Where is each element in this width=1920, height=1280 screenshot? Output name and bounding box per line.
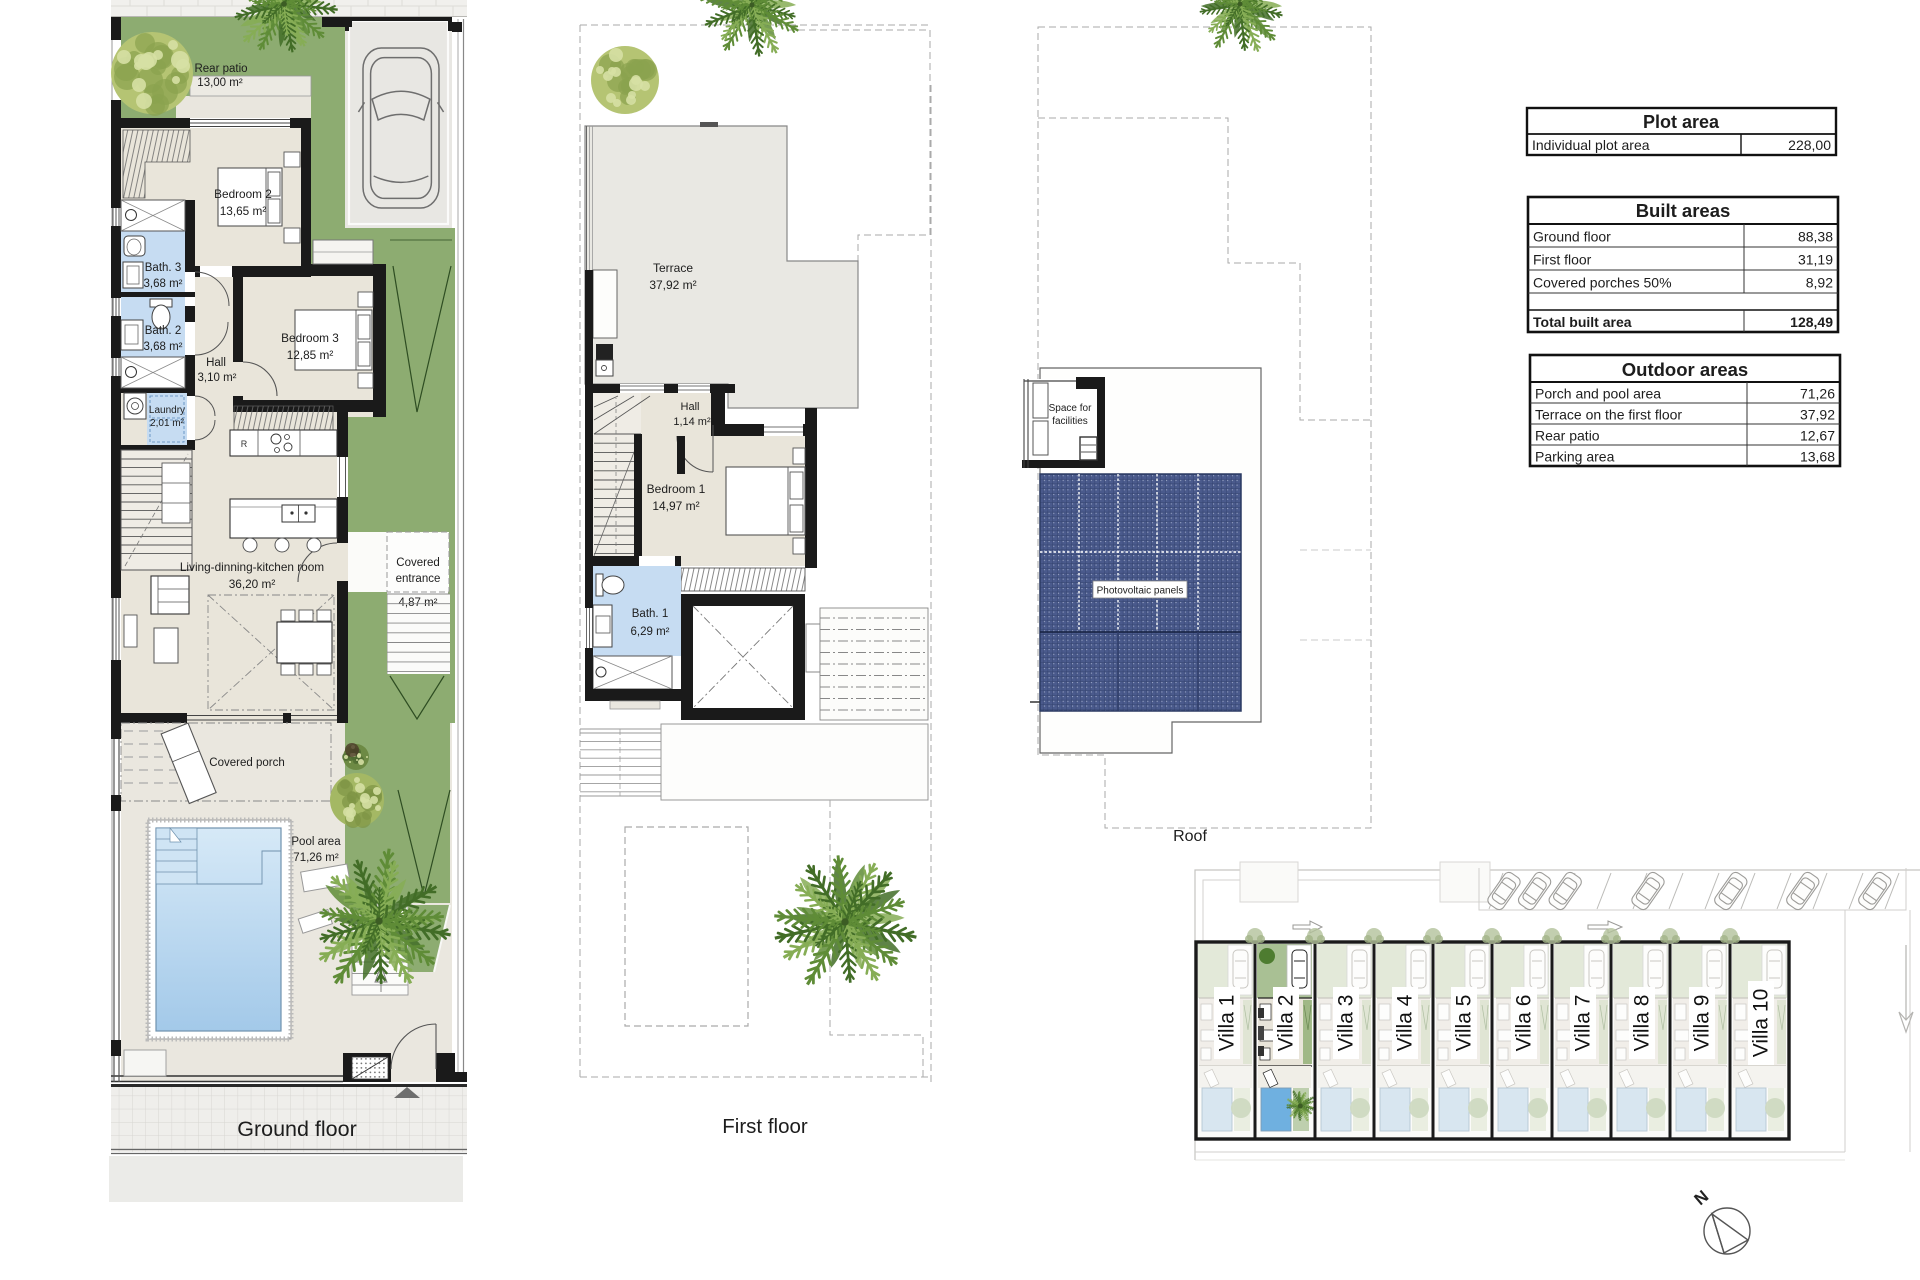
svg-text:Individual plot area: Individual plot area [1532,137,1650,153]
svg-text:Villa 7: Villa 7 [1572,995,1595,1052]
svg-text:Villa 1: Villa 1 [1216,995,1239,1052]
svg-text:Hall: Hall [681,401,700,413]
svg-text:Bath. 2: Bath. 2 [145,325,181,337]
svg-text:128,49: 128,49 [1790,314,1833,330]
svg-text:Photovoltaic panels: Photovoltaic panels [1097,586,1184,597]
svg-text:Covered porches 50%: Covered porches 50% [1533,275,1672,291]
svg-text:37,92: 37,92 [1800,407,1835,423]
svg-text:1,14 m²: 1,14 m² [673,416,711,428]
svg-text:13,00 m²: 13,00 m² [197,77,243,89]
svg-text:Built areas: Built areas [1636,200,1731,221]
svg-text:Terrace: Terrace [653,261,693,275]
svg-text:12,67: 12,67 [1800,428,1835,444]
svg-text:Bedroom 2: Bedroom 2 [214,187,272,201]
svg-text:71,26 m²: 71,26 m² [293,852,339,864]
svg-text:Villa 2: Villa 2 [1275,995,1298,1052]
svg-text:Plot area: Plot area [1643,112,1720,132]
svg-text:4,87 m²: 4,87 m² [399,597,438,609]
svg-text:88,38: 88,38 [1798,229,1833,245]
svg-text:Laundry: Laundry [149,405,185,416]
svg-text:Ground floor: Ground floor [1533,229,1611,245]
svg-text:Total built area: Total built area [1533,314,1632,330]
svg-text:Bedroom 3: Bedroom 3 [281,331,339,345]
svg-text:Rear patio: Rear patio [1535,428,1600,444]
svg-text:First floor: First floor [722,1115,808,1138]
svg-text:13,65 m²: 13,65 m² [220,204,267,218]
svg-text:228,00: 228,00 [1788,137,1831,153]
svg-text:14,97 m²: 14,97 m² [652,499,699,513]
svg-text:2,01 m²: 2,01 m² [150,418,185,429]
svg-text:Villa 10: Villa 10 [1750,989,1773,1058]
svg-text:Outdoor areas: Outdoor areas [1622,359,1748,380]
svg-text:Villa 3: Villa 3 [1335,995,1358,1052]
svg-text:12,85 m²: 12,85 m² [287,348,334,362]
svg-text:Terrace on the first floor: Terrace on the first floor [1535,407,1682,423]
svg-text:37,92 m²: 37,92 m² [649,278,696,292]
svg-text:36,20 m²: 36,20 m² [229,577,276,591]
svg-text:3,68 m²: 3,68 m² [144,278,183,290]
svg-text:31,19: 31,19 [1798,252,1833,268]
svg-text:Villa 4: Villa 4 [1394,994,1417,1051]
svg-text:3,10 m²: 3,10 m² [198,372,237,384]
svg-text:Bedroom 1: Bedroom 1 [647,482,706,496]
svg-text:8,92: 8,92 [1806,275,1833,291]
svg-text:Porch and pool area: Porch and pool area [1535,386,1661,402]
svg-text:facilities: facilities [1052,416,1088,427]
svg-text:Ground floor: Ground floor [237,1117,357,1141]
svg-text:6,29 m²: 6,29 m² [631,626,670,638]
svg-text:13,68: 13,68 [1800,449,1835,465]
svg-text:3,68 m²: 3,68 m² [144,341,183,353]
svg-text:Rear patio: Rear patio [194,63,247,75]
svg-text:Villa 8: Villa 8 [1631,995,1654,1052]
svg-text:R: R [241,439,248,449]
svg-text:Villa 9: Villa 9 [1691,995,1714,1052]
svg-text:Bath. 1: Bath. 1 [632,608,668,620]
svg-text:Living-dinning-kitchen room: Living-dinning-kitchen room [180,560,324,574]
svg-text:71,26: 71,26 [1800,386,1835,402]
svg-text:Pool area: Pool area [291,836,341,848]
svg-text:Parking area: Parking area [1535,449,1615,465]
svg-text:First floor: First floor [1533,252,1592,268]
svg-text:Bath. 3: Bath. 3 [145,262,181,274]
svg-text:entrance: entrance [396,573,441,585]
svg-text:Villa 5: Villa 5 [1453,995,1476,1052]
svg-text:Space for: Space for [1049,403,1092,414]
svg-text:Roof: Roof [1173,828,1207,845]
svg-text:Covered: Covered [396,557,439,569]
svg-text:Hall: Hall [206,357,226,369]
svg-text:Covered porch: Covered porch [209,757,284,769]
svg-text:Villa 6: Villa 6 [1513,995,1536,1052]
